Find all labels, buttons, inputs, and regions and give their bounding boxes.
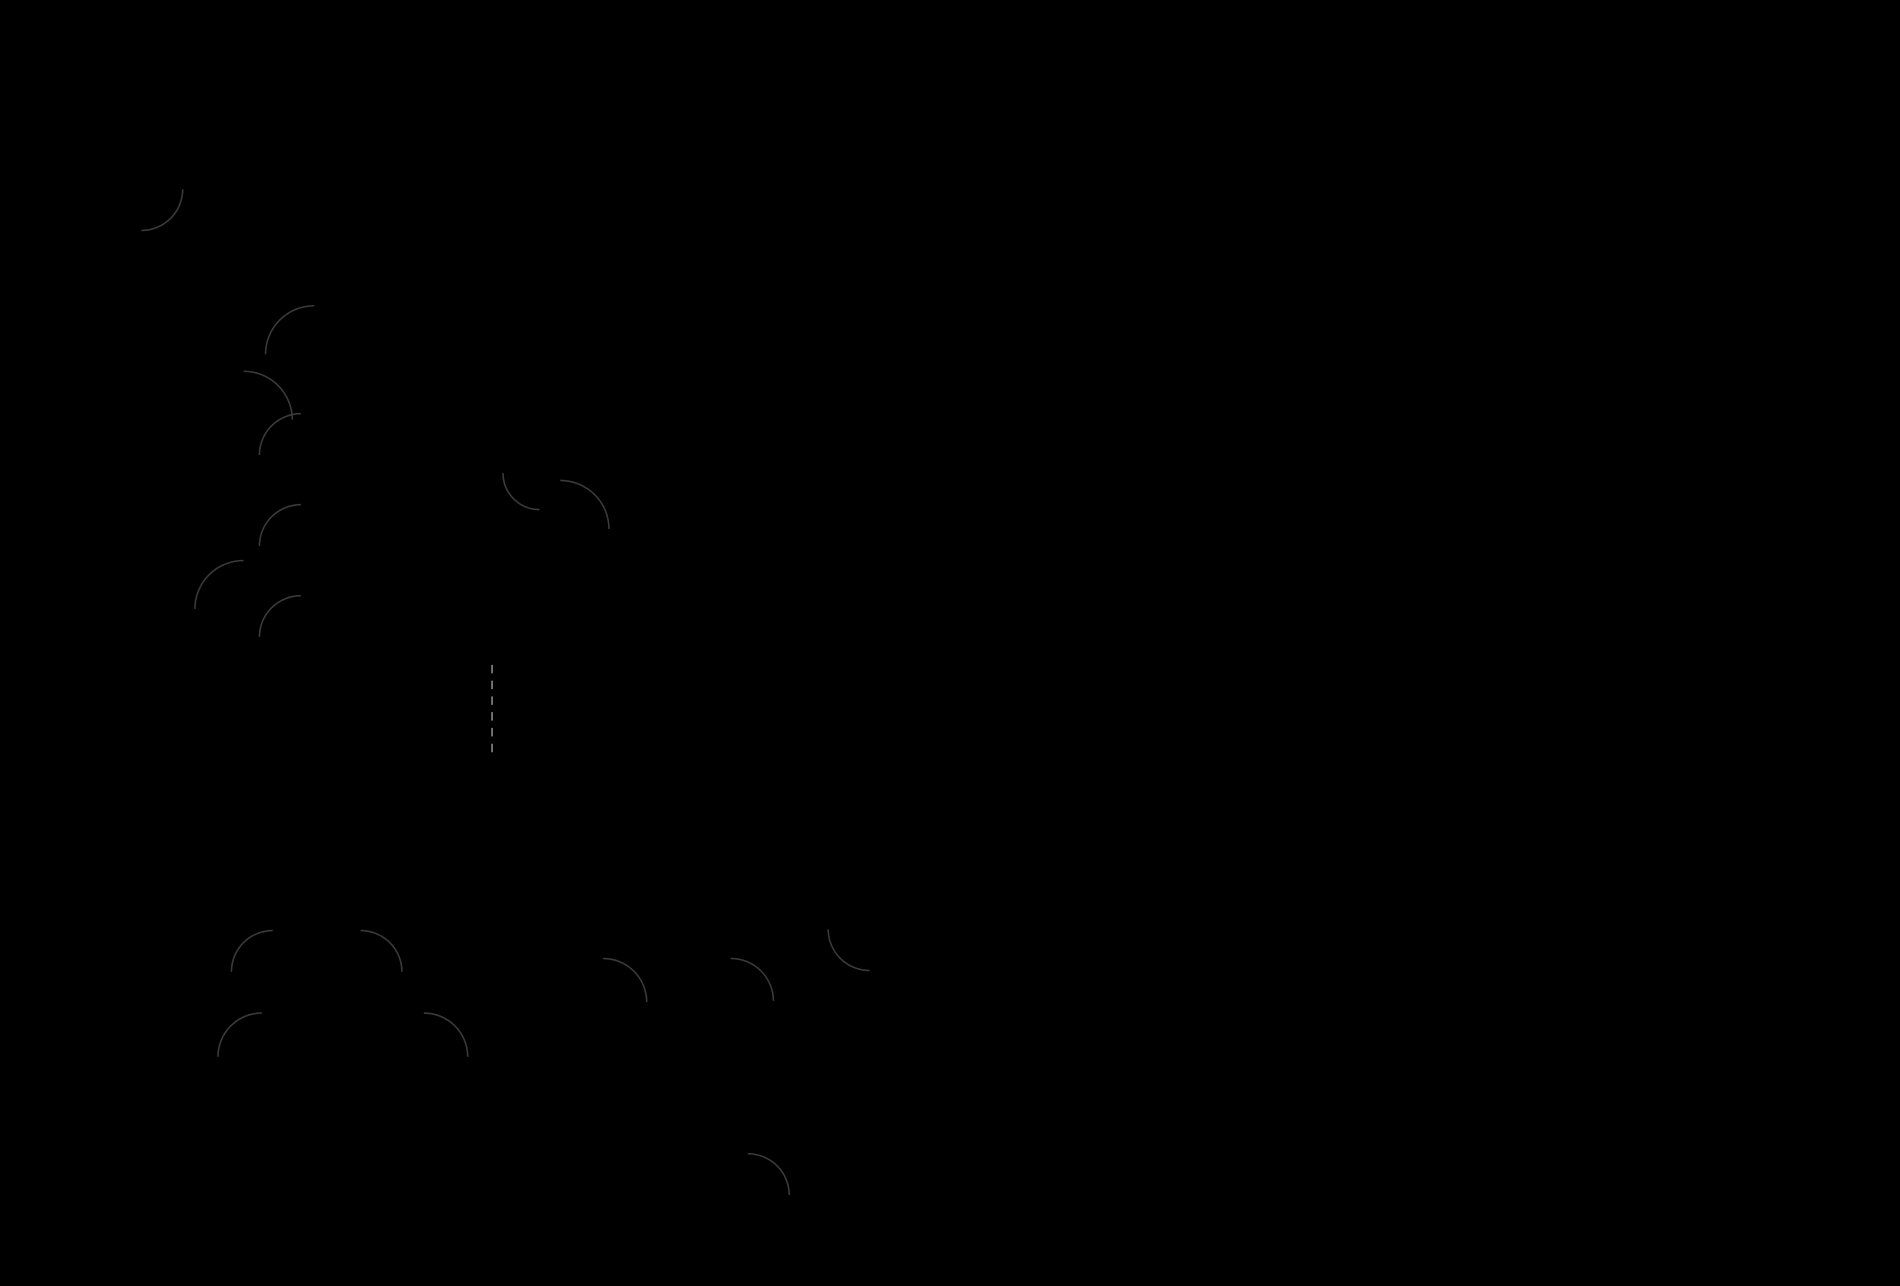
door-arcs-layer [141, 189, 869, 1195]
door-arc [141, 189, 182, 230]
door-arc [560, 480, 609, 529]
door-arc [361, 931, 402, 972]
door-arc [231, 931, 272, 972]
door-arc [259, 414, 300, 455]
door-arc [259, 596, 300, 637]
door-arc [748, 1154, 789, 1195]
door-arc [503, 473, 540, 509]
door-arc [218, 1013, 262, 1057]
door-arc [828, 929, 869, 970]
door-arc [195, 561, 244, 610]
floor-plan-canvas [0, 0, 1900, 1286]
door-arc [244, 371, 293, 420]
door-arc [603, 958, 647, 1002]
door-arc [731, 958, 774, 1000]
door-arc [259, 505, 300, 546]
door-arc [424, 1013, 468, 1057]
door-arc [266, 306, 315, 355]
floor-plan [0, 0, 1900, 1286]
